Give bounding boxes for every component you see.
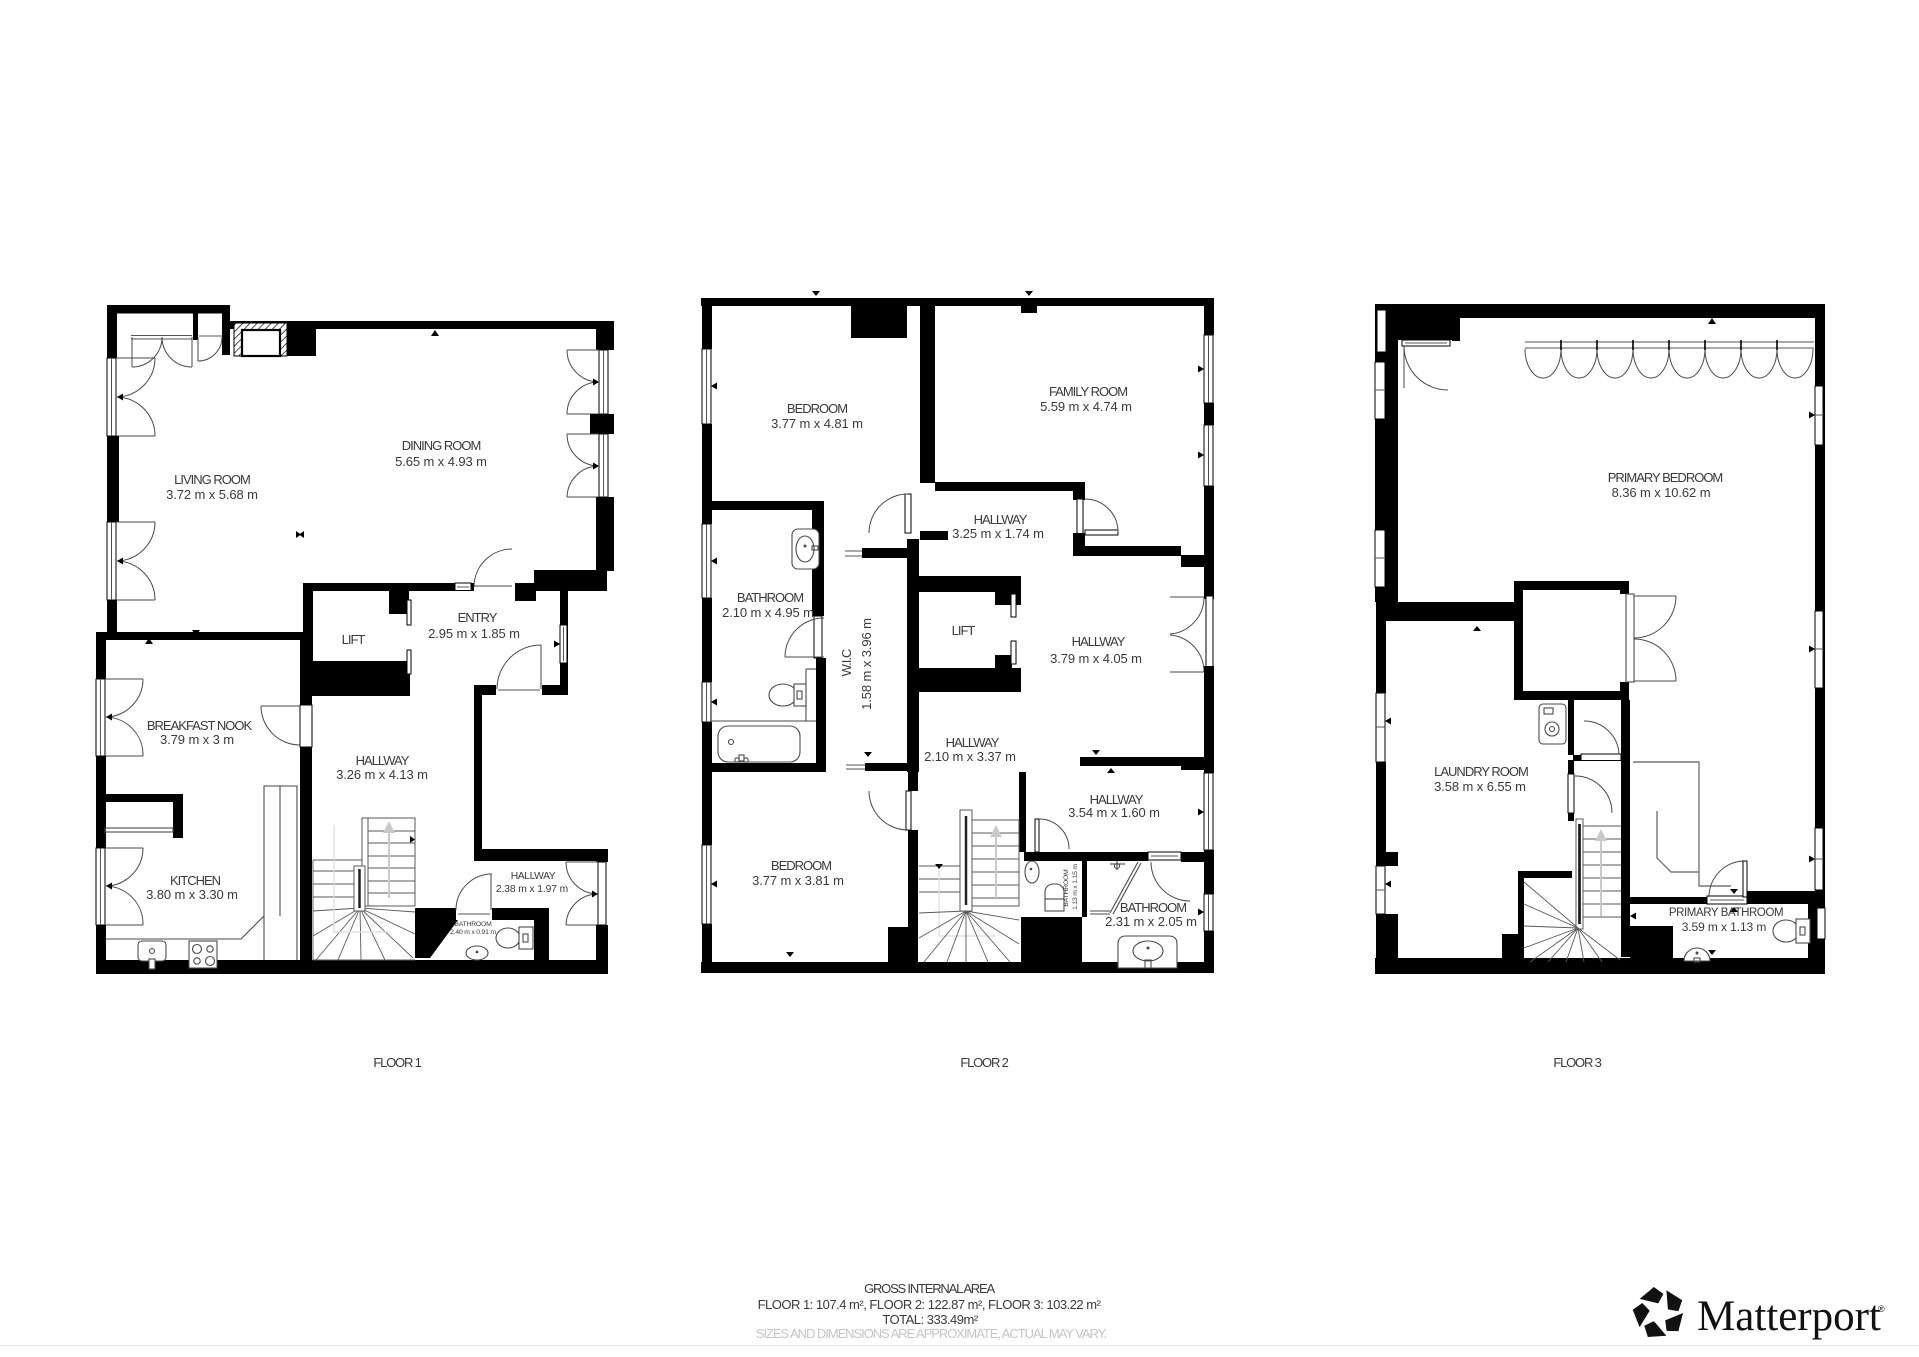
svg-text:3.54 m x 1.60 m: 3.54 m x 1.60 m	[1068, 805, 1160, 820]
svg-text:3.77 m x 4.81 m: 3.77 m x 4.81 m	[771, 416, 863, 431]
svg-text:1.58 m x 3.96 m: 1.58 m x 3.96 m	[859, 618, 874, 710]
svg-text:5.59 m x 4.74 m: 5.59 m x 4.74 m	[1040, 399, 1132, 414]
svg-text:FLOOR 1: FLOOR 1	[373, 1055, 421, 1070]
svg-text:TOTAL: 333.49m²: TOTAL: 333.49m²	[882, 1312, 979, 1327]
svg-text:3.79 m x 4.05 m: 3.79 m x 4.05 m	[1050, 651, 1142, 666]
svg-text:BEDROOM: BEDROOM	[771, 858, 831, 873]
svg-text:2.10 m x 4.95 m: 2.10 m x 4.95 m	[722, 605, 814, 620]
svg-text:3.26 m x 4.13 m: 3.26 m x 4.13 m	[336, 767, 428, 782]
svg-text:PRIMARY BATHROOM: PRIMARY BATHROOM	[1669, 907, 1783, 919]
svg-text:BATHROOM: BATHROOM	[1120, 900, 1186, 915]
svg-text:2.38 m x 1.97 m: 2.38 m x 1.97 m	[496, 884, 568, 895]
svg-text:HALLWAY: HALLWAY	[974, 512, 1028, 527]
svg-text:Matterport: Matterport	[1697, 1293, 1881, 1340]
svg-text:HALLWAY: HALLWAY	[511, 871, 556, 882]
svg-text:HALLWAY: HALLWAY	[356, 753, 410, 768]
svg-text:3.58 m x 6.55 m: 3.58 m x 6.55 m	[1434, 779, 1526, 794]
svg-text:FLOOR 3: FLOOR 3	[1553, 1055, 1601, 1070]
svg-text:FLOOR 1: 107.4 m², FLOOR 2: 12: FLOOR 1: 107.4 m², FLOOR 2: 122.87 m², F…	[758, 1297, 1102, 1312]
svg-text:W.I.C: W.I.C	[839, 649, 854, 676]
svg-text:GROSS INTERNAL AREA: GROSS INTERNAL AREA	[864, 1281, 995, 1296]
svg-text:LIVING ROOM: LIVING ROOM	[174, 472, 250, 487]
svg-text:8.36 m x 10.62 m: 8.36 m x 10.62 m	[1612, 485, 1711, 500]
svg-text:BATHROOM: BATHROOM	[454, 921, 492, 928]
svg-text:BATHROOM: BATHROOM	[1063, 869, 1070, 907]
svg-text:3.79 m x 3 m: 3.79 m x 3 m	[160, 732, 234, 747]
svg-text:3.59 m x 1.13 m: 3.59 m x 1.13 m	[1682, 920, 1767, 934]
svg-text:2.31 m x 2.05 m: 2.31 m x 2.05 m	[1105, 914, 1197, 929]
svg-text:FAMILY ROOM: FAMILY ROOM	[1049, 384, 1127, 399]
svg-text:LIFT: LIFT	[952, 623, 976, 638]
svg-text:ENTRY: ENTRY	[458, 610, 498, 625]
svg-text:®: ®	[1878, 1304, 1885, 1314]
svg-text:BEDROOM: BEDROOM	[787, 401, 847, 416]
svg-text:3.72 m x 5.68 m: 3.72 m x 5.68 m	[166, 487, 258, 502]
svg-text:2.40 m x 0.91 m: 2.40 m x 0.91 m	[450, 929, 496, 936]
svg-text:2.95 m x 1.85 m: 2.95 m x 1.85 m	[428, 626, 520, 641]
svg-text:KITCHEN: KITCHEN	[170, 873, 221, 888]
svg-text:1.13 m x 1.15 m: 1.13 m x 1.15 m	[1072, 864, 1079, 910]
svg-text:BATHROOM: BATHROOM	[737, 590, 803, 605]
svg-text:5.65 m x 4.93 m: 5.65 m x 4.93 m	[395, 454, 487, 469]
svg-text:FLOOR 2: FLOOR 2	[960, 1055, 1008, 1070]
svg-text:LIFT: LIFT	[342, 632, 366, 647]
svg-text:3.25 m x 1.74 m: 3.25 m x 1.74 m	[952, 526, 1044, 541]
svg-text:PRIMARY BEDROOM: PRIMARY BEDROOM	[1608, 470, 1723, 485]
svg-text:DINING ROOM: DINING ROOM	[402, 438, 481, 453]
svg-text:3.80 m x 3.30 m: 3.80 m x 3.30 m	[146, 887, 238, 902]
svg-text:BREAKFAST NOOK: BREAKFAST NOOK	[147, 718, 253, 733]
svg-text:2.10 m x 3.37 m: 2.10 m x 3.37 m	[924, 749, 1016, 764]
svg-text:SIZES AND DIMENSIONS ARE APPRO: SIZES AND DIMENSIONS ARE APPROXIMATE, AC…	[756, 1326, 1107, 1341]
svg-text:HALLWAY: HALLWAY	[946, 735, 1000, 750]
svg-text:3.77 m x 3.81 m: 3.77 m x 3.81 m	[752, 873, 844, 888]
svg-text:HALLWAY: HALLWAY	[1072, 634, 1126, 649]
svg-text:LAUNDRY ROOM: LAUNDRY ROOM	[1434, 764, 1528, 779]
